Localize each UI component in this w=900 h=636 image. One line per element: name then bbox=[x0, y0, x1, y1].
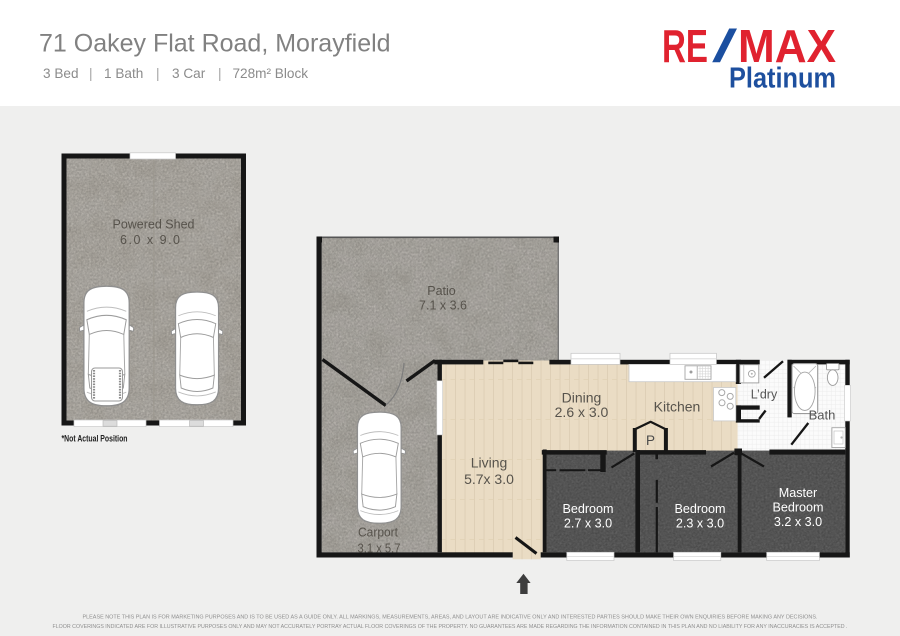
svg-text:Bedroom: Bedroom bbox=[562, 502, 613, 516]
svg-text:2.7 x 3.0: 2.7 x 3.0 bbox=[564, 517, 612, 531]
svg-text:PLEASE NOTE THIS PLAN IS FOR M: PLEASE NOTE THIS PLAN IS FOR MARKETING P… bbox=[83, 615, 818, 621]
svg-text:2.6 x 3.0: 2.6 x 3.0 bbox=[555, 404, 609, 420]
svg-text:71 Oakey Flat Road, Morayfield: 71 Oakey Flat Road, Morayfield bbox=[39, 30, 391, 58]
svg-text:P: P bbox=[646, 433, 655, 448]
svg-text:5.7x 3.0: 5.7x 3.0 bbox=[464, 471, 514, 487]
svg-text:Bedroom: Bedroom bbox=[772, 501, 823, 515]
svg-text:Carport: Carport bbox=[358, 526, 398, 540]
svg-text:Bedroom: Bedroom bbox=[674, 502, 725, 516]
svg-text:RE: RE bbox=[662, 20, 708, 72]
svg-text:2.3 x 3.0: 2.3 x 3.0 bbox=[676, 517, 724, 531]
svg-text:*Not Actual Position: *Not Actual Position bbox=[62, 434, 128, 444]
svg-text:L’dry: L’dry bbox=[751, 388, 778, 402]
svg-text:Kitchen: Kitchen bbox=[654, 399, 701, 415]
svg-text:Powered Shed: Powered Shed bbox=[112, 218, 194, 232]
svg-text:3.1 x 5.7: 3.1 x 5.7 bbox=[358, 541, 401, 555]
svg-text:6.0 x 9.0: 6.0 x 9.0 bbox=[120, 233, 180, 247]
svg-text:Bath: Bath bbox=[809, 408, 836, 423]
svg-text:Platinum: Platinum bbox=[729, 63, 836, 95]
svg-text:FLOOR COVERINGS INDICATED ARE: FLOOR COVERINGS INDICATED ARE FOR ILLUST… bbox=[53, 624, 848, 630]
svg-text:Master: Master bbox=[779, 486, 818, 500]
svg-text:Living: Living bbox=[471, 455, 508, 471]
svg-text:3.2 x 3.0: 3.2 x 3.0 bbox=[774, 515, 822, 529]
svg-text:7.1 x 3.6: 7.1 x 3.6 bbox=[419, 299, 467, 313]
svg-text:Patio: Patio bbox=[427, 284, 456, 298]
